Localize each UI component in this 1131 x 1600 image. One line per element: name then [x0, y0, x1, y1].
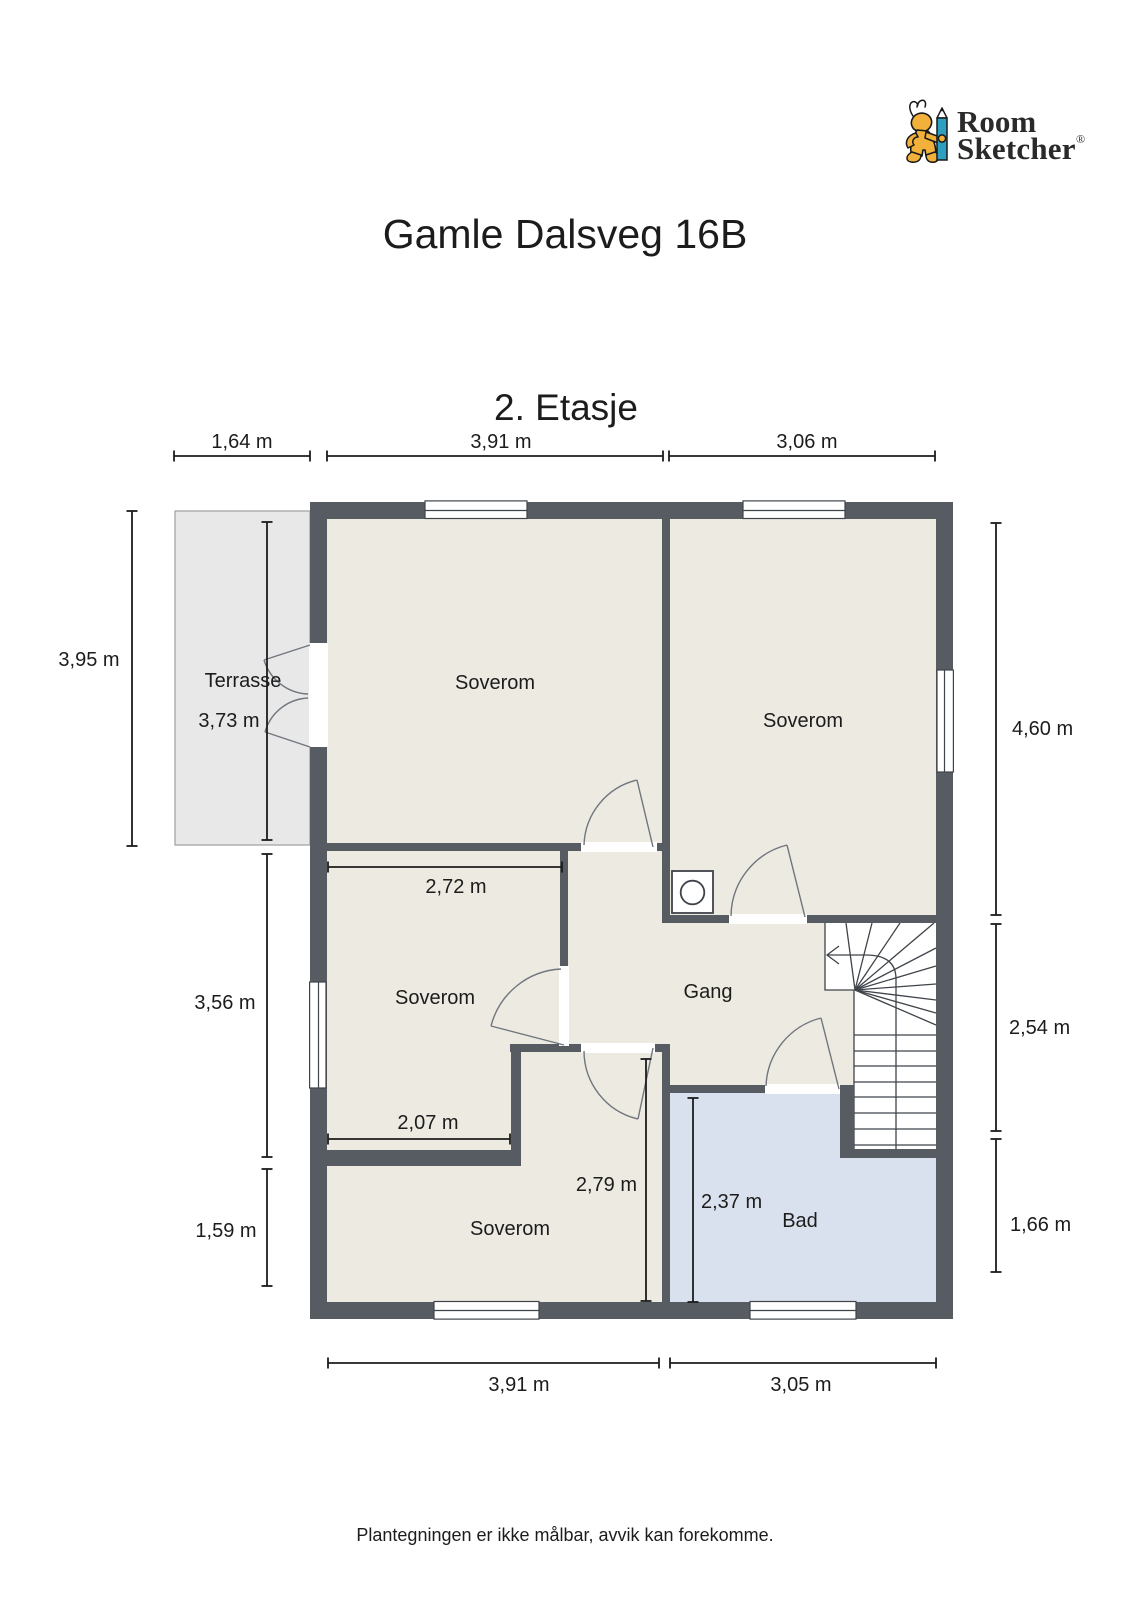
svg-text:1,66 m: 1,66 m: [1010, 1214, 1071, 1236]
svg-text:3,06 m: 3,06 m: [776, 431, 837, 453]
svg-text:2,79 m: 2,79 m: [576, 1174, 637, 1196]
svg-text:4,60 m: 4,60 m: [1012, 718, 1073, 740]
svg-text:2,37 m: 2,37 m: [701, 1191, 762, 1213]
svg-text:Gang: Gang: [684, 981, 733, 1003]
svg-text:2,54 m: 2,54 m: [1009, 1017, 1070, 1039]
svg-text:Plantegningen er ikke målbar,: Plantegningen er ikke målbar, avvik kan …: [356, 1525, 773, 1545]
svg-text:3,73 m: 3,73 m: [198, 710, 259, 732]
svg-text:2,07 m: 2,07 m: [397, 1112, 458, 1134]
svg-text:3,95 m: 3,95 m: [58, 649, 119, 671]
svg-text:2,72 m: 2,72 m: [425, 876, 486, 898]
svg-text:Soverom: Soverom: [763, 710, 843, 732]
svg-text:3,91 m: 3,91 m: [488, 1374, 549, 1396]
svg-text:Soverom: Soverom: [395, 987, 475, 1009]
svg-text:1,59 m: 1,59 m: [195, 1220, 256, 1242]
svg-text:3,56 m: 3,56 m: [194, 992, 255, 1014]
svg-text:®: ®: [1076, 132, 1085, 146]
svg-text:Soverom: Soverom: [455, 672, 535, 694]
svg-text:Sketcher: Sketcher: [957, 131, 1076, 166]
svg-text:Gamle Dalsveg 16B: Gamle Dalsveg 16B: [383, 211, 748, 257]
svg-text:1,64 m: 1,64 m: [211, 431, 272, 453]
svg-text:2. Etasje: 2. Etasje: [494, 387, 638, 428]
svg-text:Soverom: Soverom: [470, 1218, 550, 1240]
svg-text:Terrasse: Terrasse: [205, 670, 282, 692]
svg-text:3,05 m: 3,05 m: [770, 1374, 831, 1396]
svg-text:3,91 m: 3,91 m: [470, 431, 531, 453]
svg-text:Bad: Bad: [782, 1210, 818, 1232]
